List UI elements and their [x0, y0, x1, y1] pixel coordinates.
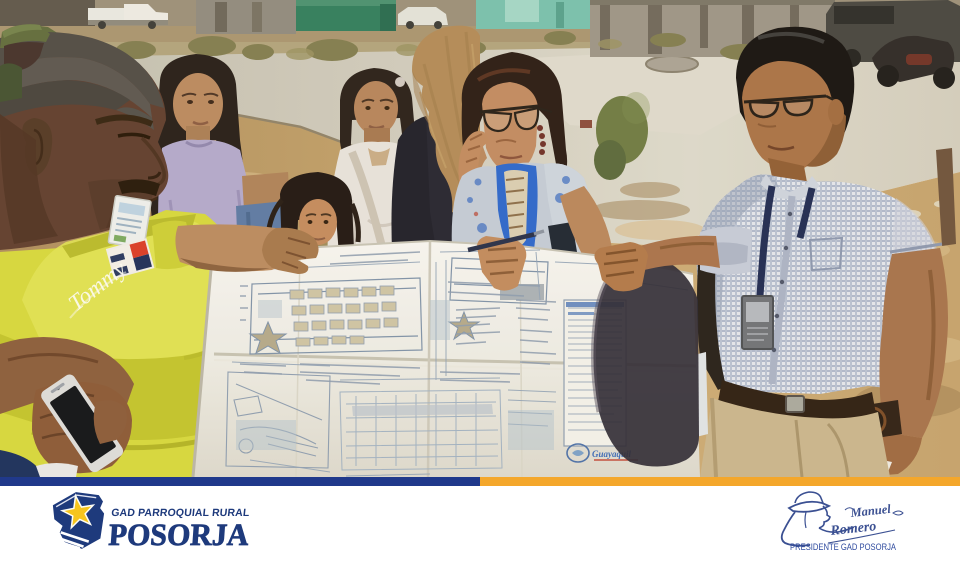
svg-text:PRESIDENTE GAD POSORJA: PRESIDENTE GAD POSORJA: [790, 542, 896, 552]
svg-text:Romero: Romero: [829, 519, 877, 539]
svg-text:Manuel: Manuel: [849, 502, 892, 520]
svg-text:POSORJA: POSORJA: [108, 517, 251, 552]
